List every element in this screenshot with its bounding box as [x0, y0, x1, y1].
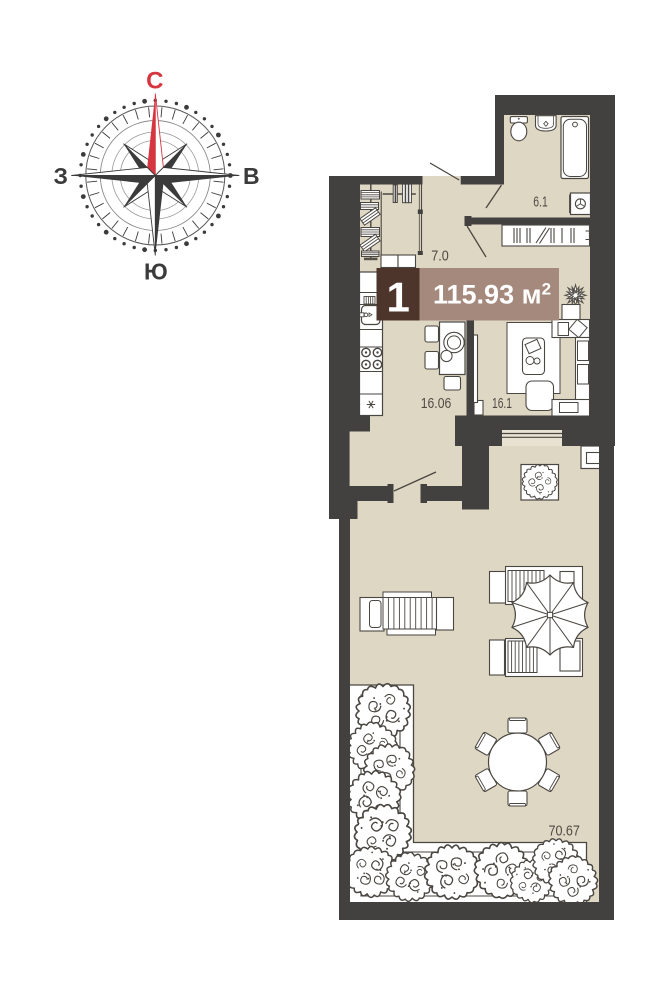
svg-text:С: С — [146, 68, 163, 95]
svg-text:1: 1 — [387, 274, 410, 321]
svg-text:16.06: 16.06 — [421, 396, 452, 412]
svg-text:6.1: 6.1 — [533, 195, 548, 211]
svg-text:70.67: 70.67 — [548, 824, 580, 840]
svg-text:115.93 м2: 115.93 м2 — [433, 280, 551, 310]
svg-text:7.0: 7.0 — [431, 249, 449, 265]
svg-text:Ю: Ю — [144, 259, 168, 285]
svg-text:З: З — [53, 163, 67, 189]
svg-text:В: В — [243, 163, 260, 189]
svg-text:16.1: 16.1 — [492, 396, 512, 412]
